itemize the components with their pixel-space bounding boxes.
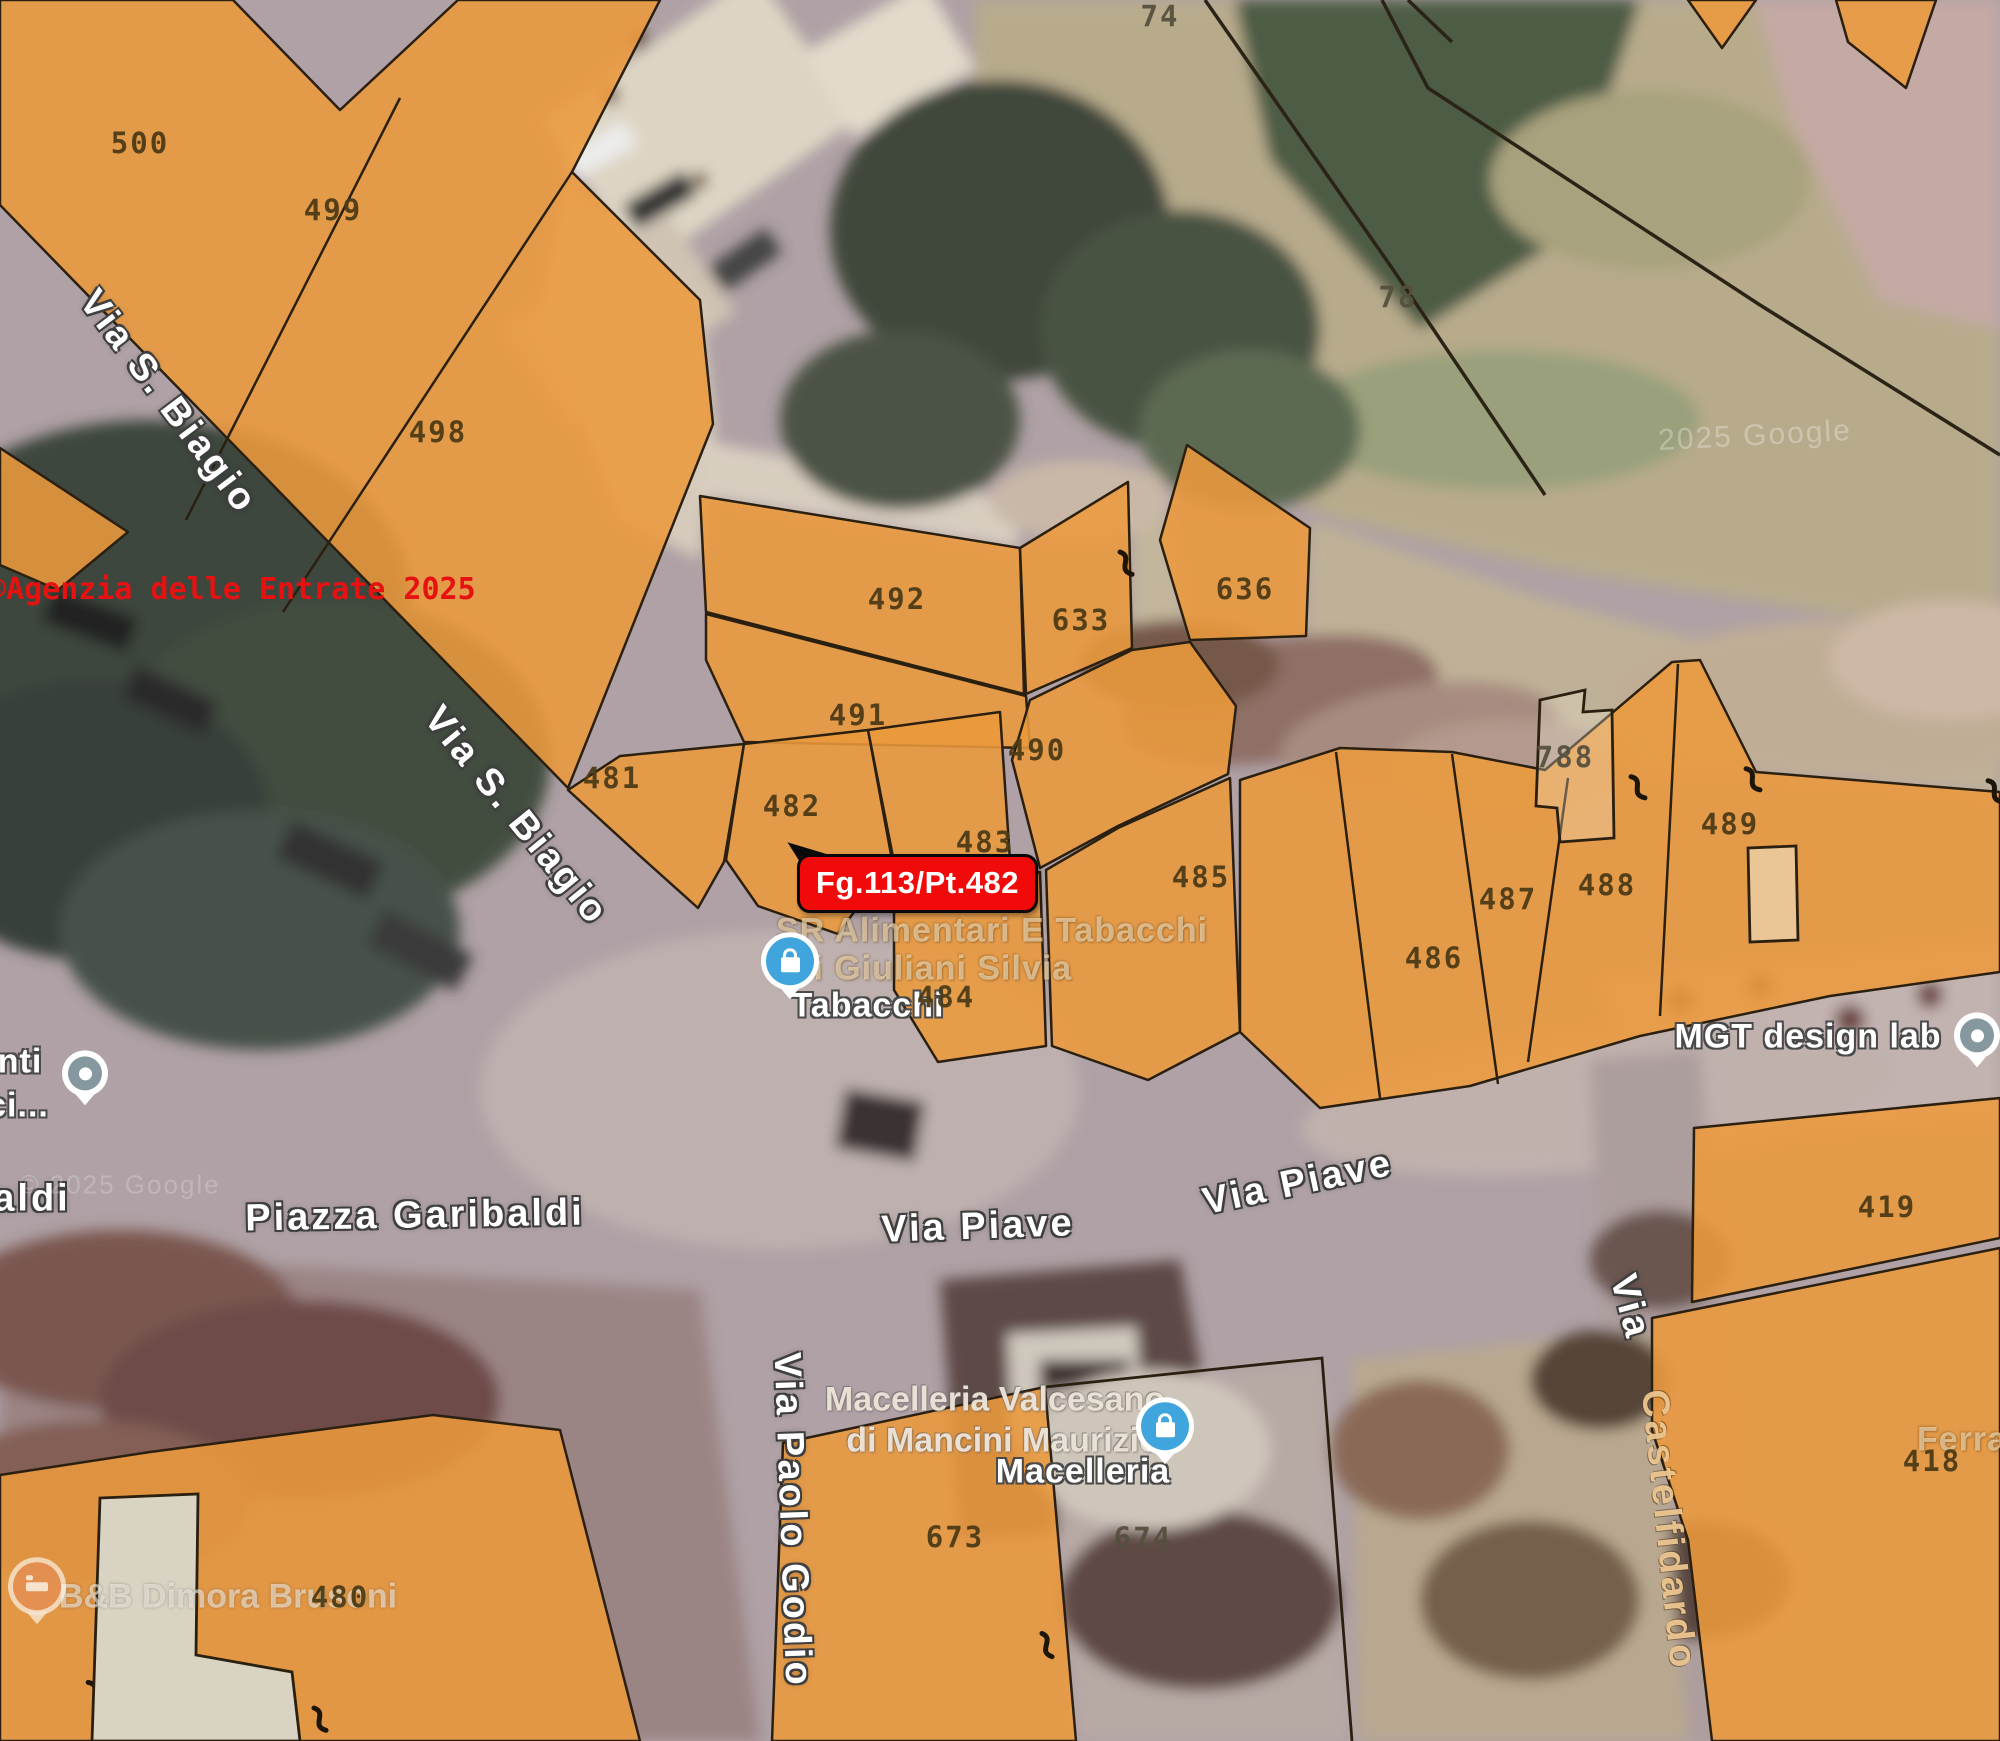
parcel-number-419: 419 [1858, 1190, 1916, 1224]
cadastral-marker[interactable]: Fg.113/Pt.482 [797, 854, 1038, 913]
map-canvas[interactable]: Via S. BiagioVia S. BiagioPiazza Garibal… [0, 0, 2000, 1741]
marker-label: Fg.113/Pt.482 [816, 865, 1019, 900]
parcel-number-636: 636 [1216, 572, 1274, 606]
parcel-number-485: 485 [1172, 860, 1230, 894]
parcel-number-499: 499 [304, 193, 362, 227]
parcel-number-484: 484 [917, 980, 975, 1014]
parcel-number-674: 674 [1114, 1521, 1172, 1555]
parcel-number-673: 673 [926, 1520, 984, 1554]
parcel-number-490: 490 [1008, 733, 1066, 767]
parcel-number-488: 488 [1578, 868, 1636, 902]
parcel-number-481: 481 [583, 761, 641, 795]
parcel-number-78: 78 [1379, 280, 1418, 314]
parcel-number-633: 633 [1052, 603, 1110, 637]
marker-box[interactable]: Fg.113/Pt.482 [797, 854, 1038, 913]
parcel-number-492: 492 [868, 582, 926, 616]
parcel-number-482: 482 [763, 789, 821, 823]
parcel-number-480: 480 [311, 1580, 369, 1614]
parcel-number-487: 487 [1479, 882, 1537, 916]
parcel-number-418: 418 [1903, 1444, 1961, 1478]
parcel-number-489: 489 [1701, 807, 1759, 841]
parcel-number-74: 74 [1141, 0, 1180, 33]
parcel-number-500: 500 [111, 126, 169, 160]
parcel-number-486: 486 [1405, 941, 1463, 975]
parcel-number-788: 788 [1536, 740, 1594, 774]
parcel-number-491: 491 [829, 698, 887, 732]
parcel-number-498: 498 [409, 415, 467, 449]
agenzia-entrate-watermark: ©Agenzia delle Entrate 2025 [0, 572, 476, 607]
